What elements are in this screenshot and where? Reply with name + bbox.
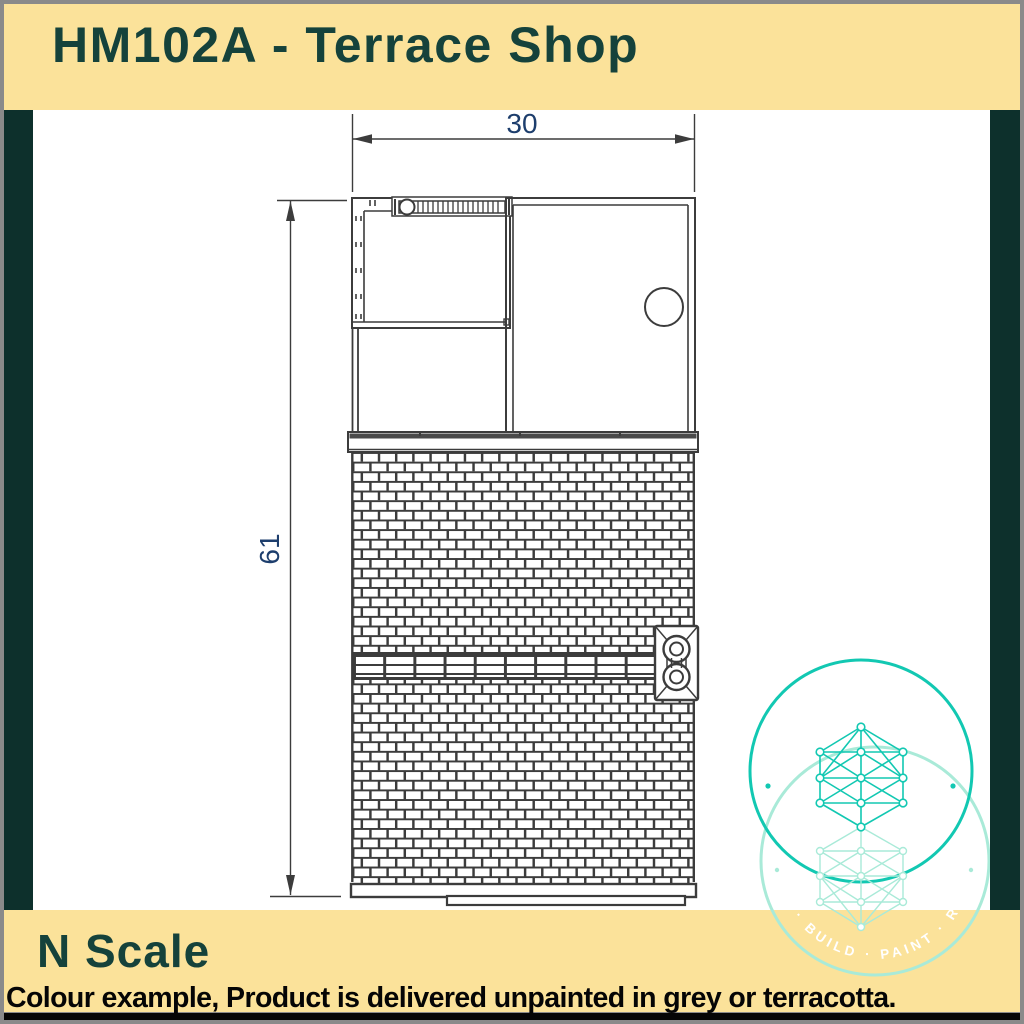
dot-right [950,783,955,788]
dot-right-light [969,868,973,872]
height-dimension-label: 61 [254,533,285,564]
dot-left [765,783,770,788]
vent-plaque [655,626,698,700]
ridge-detail [392,197,512,216]
product-image-page: HM102A - Terrace Shop [0,0,1024,1024]
dot-left-light [775,868,779,872]
right-edge-bar [990,110,1020,910]
ridge-finial-circle [400,200,415,215]
chimney-pot-circle [645,288,683,326]
watermark-logo: NT · BUILD · PAINT · REP [744,646,994,991]
roof-left-box [352,198,510,328]
eaves-gutter [348,432,698,452]
left-edge-bar [4,110,33,910]
bottom-frame-strip [4,1013,1024,1020]
tick-marks [356,200,491,319]
lattice-bright [816,723,907,831]
scale-label: N Scale [37,924,210,978]
page-title: HM102A - Terrace Shop [52,16,639,74]
base-bars [351,884,696,905]
header-banner: HM102A - Terrace Shop [4,4,1020,110]
width-dimension-label: 30 [506,110,537,139]
wall-edges [352,452,694,882]
